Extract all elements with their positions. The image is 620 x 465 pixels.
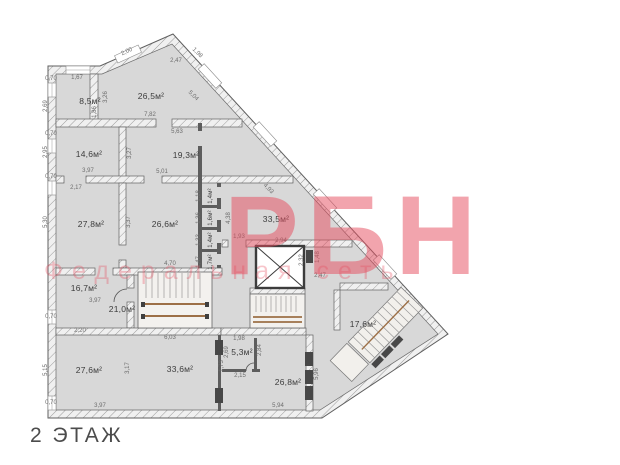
- dimension-label: 0,70: [45, 76, 57, 82]
- room-area-label: 33,6м²: [167, 364, 193, 374]
- dimension-label: 5,15: [43, 364, 49, 376]
- room-area-label: 5,3м²: [231, 347, 253, 357]
- room-area-label: 26,6м²: [152, 219, 178, 229]
- dimension-label: 3,97: [82, 168, 94, 174]
- dimension-label: 7,82: [144, 112, 156, 118]
- dimension-label: 1,67: [71, 75, 83, 81]
- dimension-label: 0,70: [45, 400, 57, 406]
- dimension-label: 0,70: [45, 314, 57, 320]
- room-area-label: 17,6м²: [350, 319, 376, 329]
- room-area-label: 27,8м²: [78, 219, 104, 229]
- dimension-label: 2,84: [257, 344, 263, 356]
- dimension-label: 2,15: [234, 373, 246, 379]
- dimension-label: 2,69: [43, 100, 49, 112]
- dimension-label: 6,03: [164, 335, 176, 341]
- dimension-label: 3,97: [94, 403, 106, 409]
- room-area-label: 26,8м²: [275, 377, 301, 387]
- dimension-label: 5,96: [314, 368, 320, 380]
- room-area-label: 21,0м²: [109, 304, 135, 314]
- dimension-label: 2,69: [224, 346, 230, 358]
- dimension-label: 2,20: [74, 328, 86, 334]
- room-area-label: 26,5м²: [138, 91, 164, 101]
- dimension-label: 5,63: [171, 129, 183, 135]
- dimension-label: 1,18: [196, 190, 202, 202]
- room-area-label: 19,3м²: [173, 150, 199, 160]
- room-area-label: 27,6м²: [76, 365, 102, 375]
- staircase-secondary: [250, 294, 305, 328]
- watermark-tagline: Федеральная сеть: [44, 257, 403, 286]
- room-area-label: 14,6м²: [76, 149, 102, 159]
- dimension-label: 0,70: [45, 131, 57, 137]
- dimension-label: 1,86: [92, 106, 98, 118]
- dimension-label: 5,01: [156, 169, 168, 175]
- dimension-label: 2,95: [43, 146, 49, 158]
- dimension-label: 3,27: [127, 147, 133, 159]
- dimension-label: 3,26: [103, 91, 109, 103]
- floor-title: 2 ЭТАЖ: [30, 424, 123, 448]
- closet-area-label: 1,6м²: [208, 210, 214, 225]
- dimension-label: 1,98: [233, 336, 245, 342]
- room-area-label: 8,5м²: [79, 96, 101, 106]
- closet-area-label: 1,4м²: [208, 188, 214, 203]
- dimension-label: 0,70: [45, 174, 57, 180]
- dimension-label: 2,47: [170, 58, 182, 64]
- dimension-label: 1,73: [219, 360, 225, 372]
- dimension-label: 5,30: [43, 216, 49, 228]
- dimension-label: 3,97: [89, 298, 101, 304]
- dimension-label: 1,36: [196, 212, 202, 224]
- dimension-label: 2,17: [70, 185, 82, 191]
- dimension-label: 3,17: [125, 362, 131, 374]
- floor-plan-page: 8,5м² 26,5м² 14,6м² 19,3м² 27,8м² 26,6м²…: [0, 0, 620, 465]
- dimension-label: 1,33: [196, 234, 202, 246]
- closet-area-label: 1,4м²: [208, 232, 214, 247]
- dimension-label: 5,94: [272, 403, 284, 409]
- dimension-label: 3,37: [126, 216, 132, 228]
